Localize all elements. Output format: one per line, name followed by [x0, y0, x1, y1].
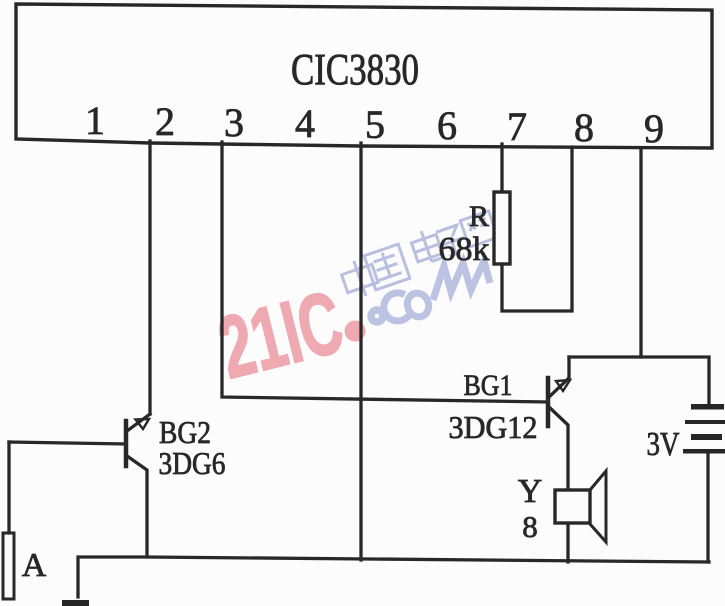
- svg-text:3DG6: 3DG6: [159, 445, 226, 481]
- svg-text:CIC3830: CIC3830: [291, 45, 419, 94]
- svg-text:8: 8: [574, 105, 594, 150]
- svg-text:Y: Y: [518, 473, 543, 510]
- svg-text:1: 1: [85, 98, 105, 143]
- svg-text:3: 3: [224, 100, 244, 145]
- svg-text:9: 9: [644, 106, 664, 151]
- svg-text:3V: 3V: [647, 426, 680, 463]
- svg-text:7: 7: [507, 104, 527, 149]
- svg-text:4: 4: [295, 101, 315, 146]
- svg-text:R: R: [469, 200, 489, 233]
- svg-text:2: 2: [155, 99, 175, 144]
- svg-text:3DG12: 3DG12: [449, 409, 538, 445]
- svg-text:5: 5: [365, 102, 385, 147]
- svg-text:8: 8: [522, 509, 538, 544]
- svg-text:6: 6: [437, 103, 457, 148]
- svg-text:BG1: BG1: [464, 369, 513, 402]
- svg-text:68k: 68k: [439, 231, 490, 268]
- svg-text:A: A: [22, 547, 47, 584]
